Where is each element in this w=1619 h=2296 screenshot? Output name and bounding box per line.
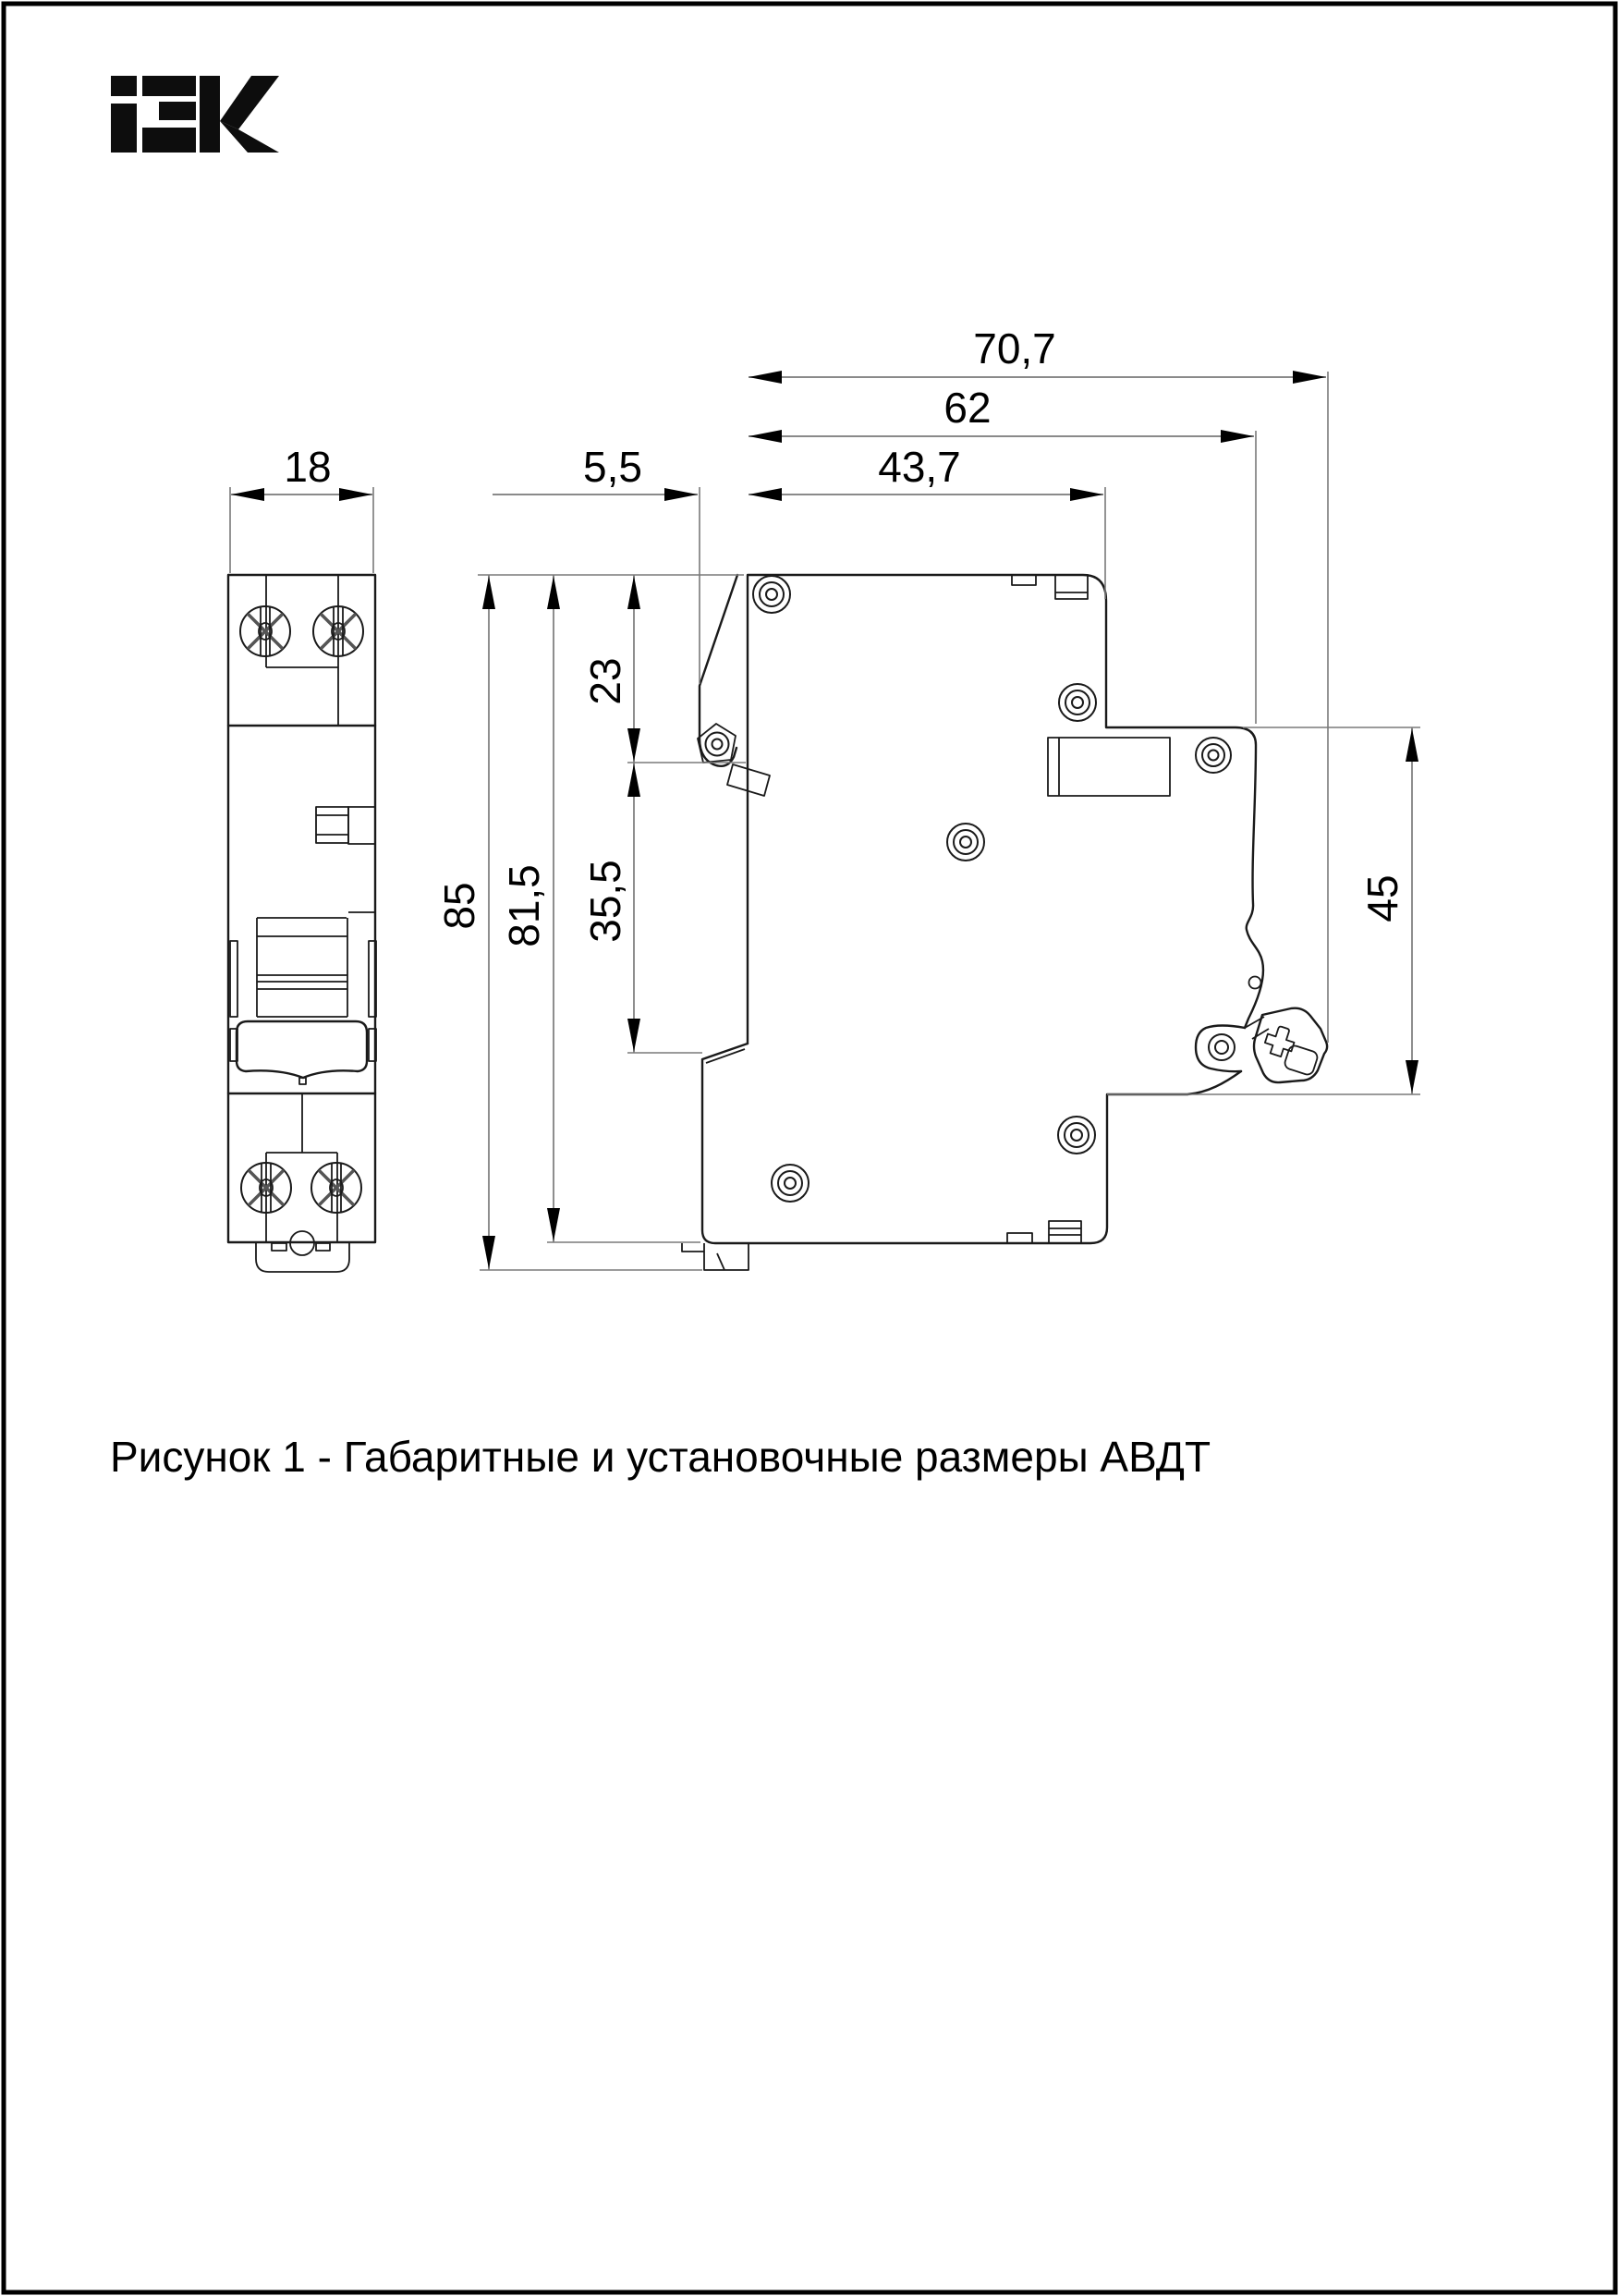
dim-label-depth-to-din-face: 62 (943, 384, 991, 432)
dim-label-top-to-recess: 23 (581, 657, 629, 704)
dim-label-tab-depth: 5,5 (583, 443, 642, 491)
dim-label-depth-to-step: 43,7 (878, 443, 961, 491)
drawing-page: IEK (0, 0, 1619, 2296)
technical-drawing: IEK (0, 0, 1619, 2296)
dim-label-body-height: 81,5 (500, 864, 548, 947)
dim-label-total-height: 85 (435, 882, 483, 929)
figure-caption: Рисунок 1 - Габаритные и установочные ра… (110, 1433, 1211, 1481)
dim-label-din-rail-span: 45 (1358, 874, 1406, 922)
page-border (4, 4, 1615, 2292)
dim-label-total-depth: 70,7 (973, 324, 1056, 372)
dim-label-recess-span: 35,5 (581, 860, 629, 943)
dim-label-front-width: 18 (284, 443, 331, 491)
